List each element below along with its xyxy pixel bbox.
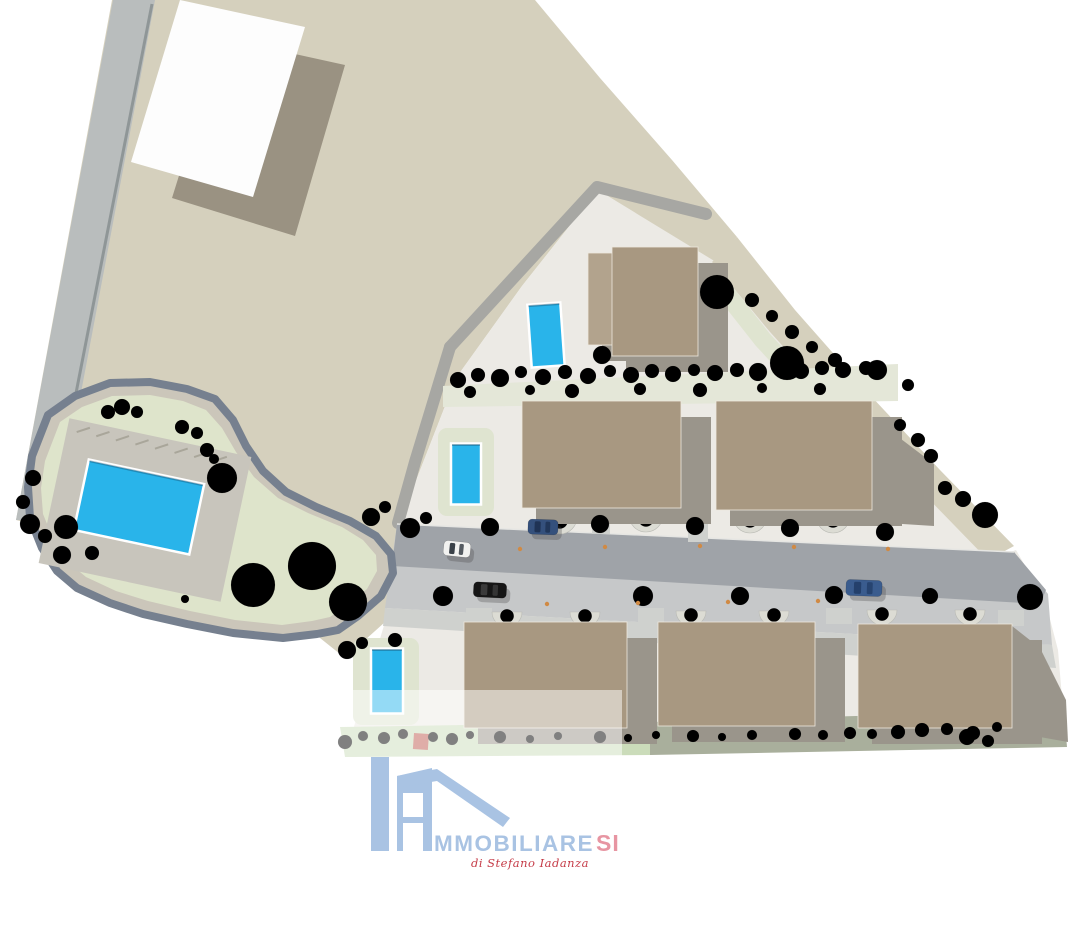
tree [580,368,596,384]
tree-highlight [402,519,414,531]
tree-highlight [653,732,658,737]
street-light [886,547,890,551]
tree-highlight [748,731,754,737]
tree [938,481,952,495]
tree [963,607,977,621]
car-rear-window [867,582,873,594]
driveway [826,608,852,624]
logo-subtitle: di Stefano Iadanza [471,856,589,870]
tree [500,609,514,623]
tree-highlight [956,492,965,501]
tree-highlight [292,545,320,573]
tree [558,365,572,379]
tree-highlight [816,362,824,370]
tree [718,733,726,741]
tree [789,728,801,740]
tree-highlight [916,724,924,732]
tree-highlight [731,364,739,372]
tree [687,730,699,742]
pool-water [527,302,564,367]
tree [53,546,71,564]
tree [604,365,616,377]
street-light [792,545,796,549]
tree-highlight [974,504,989,519]
tree-highlight [364,509,374,519]
tree [731,587,749,605]
tree-highlight [201,444,209,452]
swimming-pool [451,444,481,505]
pool-water [451,444,481,505]
tree [420,512,432,524]
building-roof [716,401,872,510]
tree-highlight [845,728,852,735]
car-body [473,582,507,599]
tree-highlight [819,731,825,737]
site-plan-svg: MMOBILIARE SI di Stefano Iadanza [0,0,1077,948]
tree-highlight [501,610,509,618]
tree-highlight [435,587,447,599]
tree-highlight [868,730,874,736]
tree-highlight [923,589,932,598]
tree-highlight [773,348,793,368]
tree [693,383,707,397]
logo-window-1 [403,793,423,817]
tree [645,364,659,378]
tree-highlight [912,434,920,442]
tree-highlight [942,724,949,731]
site-plan-rendering: MMOBILIARE SI di Stefano Iadanza [0,0,1077,948]
street-light [518,547,522,551]
tree [191,427,203,439]
tree [433,586,453,606]
tree [992,722,1002,732]
tree [131,406,143,418]
car-body [528,519,559,535]
tree-highlight [26,471,35,480]
tree-highlight [605,366,612,373]
tree-highlight [694,384,702,392]
tree-highlight [807,342,814,349]
tree [924,449,938,463]
tree-highlight [357,638,364,645]
tree-highlight [210,455,216,461]
tree [231,563,275,607]
driveway [466,608,492,624]
tree [114,399,130,415]
tree-highlight [210,465,227,482]
tree [766,310,778,322]
tree-highlight [815,384,822,391]
tree [867,729,877,739]
tree [491,369,509,387]
tree-highlight [132,407,139,414]
tree [730,363,744,377]
tree-highlight [581,369,590,378]
car-rear-window [545,522,550,533]
building-roof [522,401,681,508]
tree [844,727,856,739]
tree [955,491,971,507]
tree [207,463,237,493]
tree [745,293,759,307]
tree-highlight [960,730,969,739]
tree [972,502,998,528]
tree-highlight [635,587,647,599]
tree-highlight [767,311,774,318]
car-windshield [854,582,862,594]
tree [624,734,632,742]
tree [785,325,799,339]
tree [356,637,368,649]
tree-highlight [646,365,654,373]
tree-highlight [685,609,693,617]
tree-highlight [332,586,354,608]
tree [902,379,914,391]
tree-highlight [235,566,261,592]
tree [175,420,189,434]
swimming-pool [527,302,564,367]
tree-highlight [39,530,47,538]
tree-highlight [878,524,888,534]
tree-highlight [451,373,460,382]
street-light [726,600,730,604]
driveway [998,610,1024,626]
tree [665,366,681,382]
tree-highlight [689,365,696,372]
tree [362,508,380,526]
tree [388,633,402,647]
tree [288,542,336,590]
tree [16,495,30,509]
building-roof [658,622,815,726]
tree-highlight [939,482,947,490]
tree-highlight [964,608,972,616]
tree-highlight [176,421,184,429]
tree-highlight [22,515,34,527]
tree [825,586,843,604]
street-light [698,544,702,548]
tree-highlight [182,596,187,601]
tree [535,369,551,385]
tree-highlight [708,366,717,375]
tree-highlight [17,496,25,504]
tree [747,730,757,740]
tree [634,383,646,395]
tree-highlight [102,406,110,414]
tree [85,546,99,560]
tree-highlight [625,735,630,740]
tree-highlight [983,736,990,743]
tree-highlight [465,387,472,394]
tree [593,346,611,364]
tree [54,515,78,539]
tree-highlight [827,587,837,597]
tree [814,383,826,395]
tree-highlight [895,420,902,427]
logo-text-main: MMOBILIARE [434,831,594,856]
tree-highlight [688,731,695,738]
tree [818,730,828,740]
tree [684,608,698,622]
tree-highlight [869,361,881,373]
tree-highlight [829,354,837,362]
tree [875,607,889,621]
tree [867,360,887,380]
tree-highlight [783,520,793,530]
tree-highlight [593,516,603,526]
tree-highlight [380,502,387,509]
car-windshield [534,521,540,532]
tree-highlight [758,384,764,390]
tree-highlight [635,384,642,391]
tree-highlight [786,326,794,334]
tree [911,433,925,447]
building-roof [612,247,698,356]
tree-highlight [876,608,884,616]
tree-highlight [86,547,94,555]
tree [591,515,609,533]
tree [700,275,734,309]
tree-highlight [595,347,605,357]
tree [959,729,975,745]
car-rear-window [492,585,498,596]
car-body [846,579,883,596]
tree [101,405,115,419]
tree-highlight [688,518,698,528]
tree-highlight [421,513,428,520]
logo-text-accent: SI [596,830,620,856]
tree-highlight [493,370,503,380]
tree-highlight [340,642,350,652]
tree [894,419,906,431]
tree-highlight [1019,586,1034,601]
tree [688,364,700,376]
car-windshield [480,584,487,595]
tree-highlight [55,547,65,557]
tree-highlight [790,729,797,736]
tree-highlight [925,450,933,458]
parked-car [846,579,887,601]
tree [707,365,723,381]
tree [329,583,367,621]
tree [20,514,40,534]
tree [400,518,420,538]
tree [749,363,767,381]
tree [181,595,189,603]
tree-highlight [703,277,723,297]
tree-highlight [472,369,480,377]
tree [922,588,938,604]
tree [379,501,391,513]
tree-highlight [746,294,754,302]
tree-highlight [526,386,532,392]
tree-highlight [56,517,70,531]
tree [515,366,527,378]
tree-highlight [733,588,743,598]
logo-window-2 [403,823,423,851]
tree [652,731,660,739]
tree-highlight [389,634,397,642]
tree [686,517,704,535]
watermark-band [330,690,622,757]
tree-highlight [566,385,574,393]
tree [209,454,219,464]
tree [876,523,894,541]
car-body [443,540,471,558]
logo-house-icon [371,757,389,851]
tree-highlight [719,734,724,739]
driveway [638,608,664,624]
tree [471,368,485,382]
tree [757,383,767,393]
tree [941,723,953,735]
tree-highlight [892,726,900,734]
tree [450,372,466,388]
tree [338,641,356,659]
building-roof [858,624,1012,728]
tree [767,608,781,622]
tree-highlight [115,400,124,409]
street-light [816,599,820,603]
tree [982,735,994,747]
tree-highlight [516,367,523,374]
tree-highlight [666,367,675,376]
tree [25,470,41,486]
tree [525,385,535,395]
tree-highlight [624,368,633,377]
agency-logo: MMOBILIARE SI di Stefano Iadanza [371,757,620,870]
tree [578,609,592,623]
tree [623,367,639,383]
tree-highlight [579,610,587,618]
tree [770,346,804,380]
street-light [603,545,607,549]
tree [815,361,829,375]
tree [781,519,799,537]
tree-highlight [993,723,999,729]
tree [38,529,52,543]
tree [891,725,905,739]
tree-highlight [559,366,567,374]
tree [464,386,476,398]
parked-car [473,582,511,604]
tree [565,384,579,398]
street-light [636,601,640,605]
parked-car [528,519,563,540]
tree-highlight [751,364,761,374]
tree-highlight [768,609,776,617]
tree-highlight [903,380,910,387]
street-light [545,602,549,606]
tree-highlight [483,519,493,529]
tree [828,353,842,367]
car-windshield [449,543,456,555]
tree-highlight [536,370,545,379]
tree [915,723,929,737]
tree [806,341,818,353]
tree [1017,584,1043,610]
tree [481,518,499,536]
tree-highlight [192,428,199,435]
